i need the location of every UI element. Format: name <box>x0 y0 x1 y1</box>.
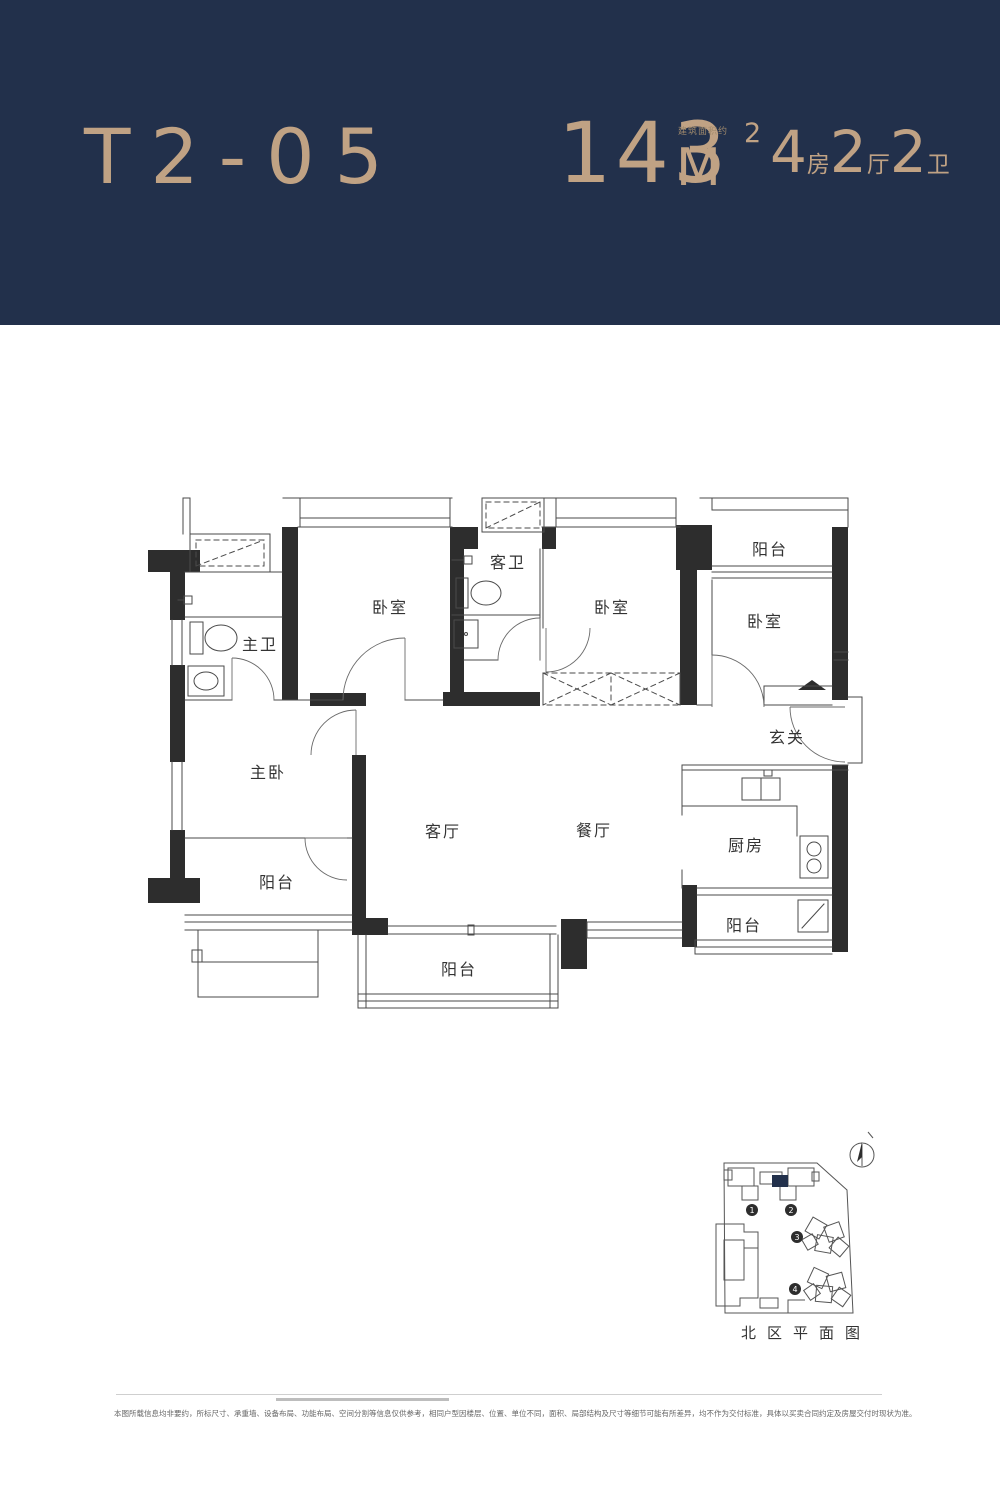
badge-1: 1 <box>749 1206 754 1215</box>
badge-2: 2 <box>788 1206 793 1215</box>
area-note: 建筑面积约 <box>678 124 728 137</box>
room-label-living-room: 客厅 <box>425 822 461 841</box>
footer-divider-long <box>116 1394 882 1395</box>
room-label-bedroom-2: 卧室 <box>594 598 630 617</box>
area-unit: M <box>676 138 721 198</box>
room-label-master-bedroom: 主卧 <box>250 763 286 782</box>
spec-baths-count: 2 <box>890 118 927 186</box>
faucet-icon <box>464 556 472 564</box>
page: T2-05 143 建筑面积约 M 2 4房2厅2卫 <box>0 0 1000 1499</box>
room-label-guest-bath: 客卫 <box>490 553 526 572</box>
spec-baths-unit: 卫 <box>927 152 950 178</box>
site-building-badges: 1 2 3 4 <box>746 1204 803 1295</box>
badge-4: 4 <box>792 1285 797 1294</box>
compass-icon <box>850 1132 874 1167</box>
room-label-balcony-left: 阳台 <box>259 873 295 892</box>
faucet-icon <box>184 596 192 604</box>
room-label-dining-room: 餐厅 <box>576 821 612 840</box>
badge-3: 3 <box>794 1233 799 1242</box>
room-label-kitchen: 厨房 <box>728 836 764 855</box>
room-label-balcony-bottom: 阳台 <box>441 960 477 979</box>
site-cluster-4 <box>804 1267 851 1306</box>
room-label-bedroom-3: 卧室 <box>747 612 783 631</box>
unit-code: T2-05 <box>84 112 403 201</box>
room-label-bedroom-1: 卧室 <box>372 598 408 617</box>
room-label-master-bath: 主卫 <box>242 635 278 654</box>
site-cluster-3 <box>802 1217 849 1257</box>
toilet-icon <box>190 622 203 654</box>
walls-structural <box>148 525 848 969</box>
floor-plan: 主卫 卧室 客卫 卧室 阳台 卧室 玄关 主卧 客厅 餐厅 厨房 阳台 阳台 阳… <box>140 450 900 1040</box>
spec-rooms-unit: 房 <box>807 152 830 178</box>
footer-divider-short <box>276 1398 449 1401</box>
spec-halls-unit: 厅 <box>867 152 890 178</box>
site-boundary-notch <box>788 1300 805 1313</box>
current-unit-marker <box>772 1175 788 1187</box>
spec-rooms-count: 4 <box>770 118 807 186</box>
room-labels: 主卫 卧室 客卫 卧室 阳台 卧室 玄关 主卧 客厅 餐厅 厨房 阳台 阳台 阳… <box>242 540 805 979</box>
room-label-balcony-top: 阳台 <box>752 540 788 559</box>
disclaimer-text: 本图所载信息均非要约，所标尺寸、承重墙、设备布局、功能布局、空间分割等信息仅供参… <box>114 1408 894 1419</box>
layout-spec: 4房2厅2卫 <box>770 118 950 186</box>
sink-icon <box>188 666 224 696</box>
room-label-balcony-kitchen: 阳台 <box>726 916 762 935</box>
site-plan-caption: 北区平面图 <box>700 1322 912 1343</box>
site-buildings-row <box>724 1168 819 1200</box>
room-label-foyer: 玄关 <box>769 728 805 747</box>
header-banner: T2-05 143 建筑面积约 M 2 4房2厅2卫 <box>0 0 1000 325</box>
area-superscript: 2 <box>744 118 761 149</box>
spec-halls-count: 2 <box>830 118 867 186</box>
